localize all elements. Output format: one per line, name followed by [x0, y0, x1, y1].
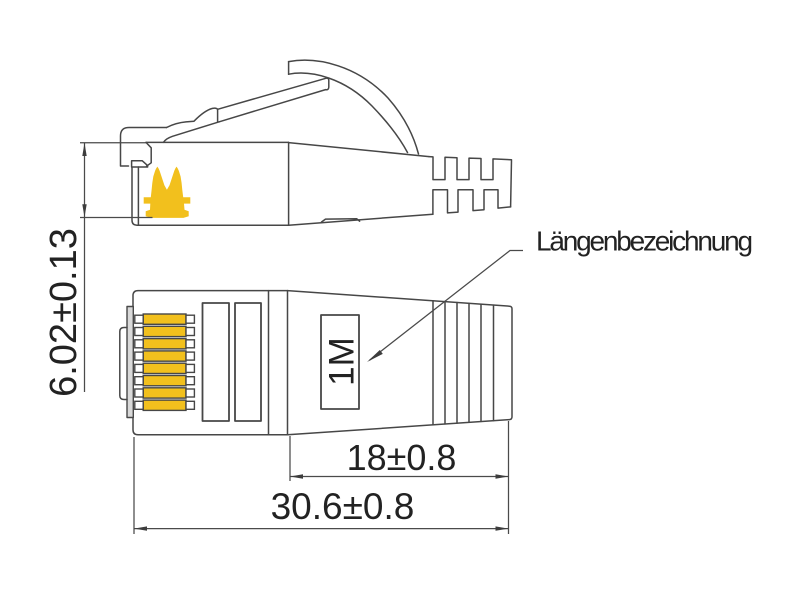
svg-text:Längenbezeichnung: Längenbezeichnung [536, 226, 751, 257]
svg-text:1M: 1M [323, 337, 362, 386]
svg-text:18±0.8: 18±0.8 [347, 437, 457, 478]
svg-text:30.6±0.8: 30.6±0.8 [271, 486, 415, 527]
svg-text:6.02±0.13: 6.02±0.13 [43, 228, 85, 397]
